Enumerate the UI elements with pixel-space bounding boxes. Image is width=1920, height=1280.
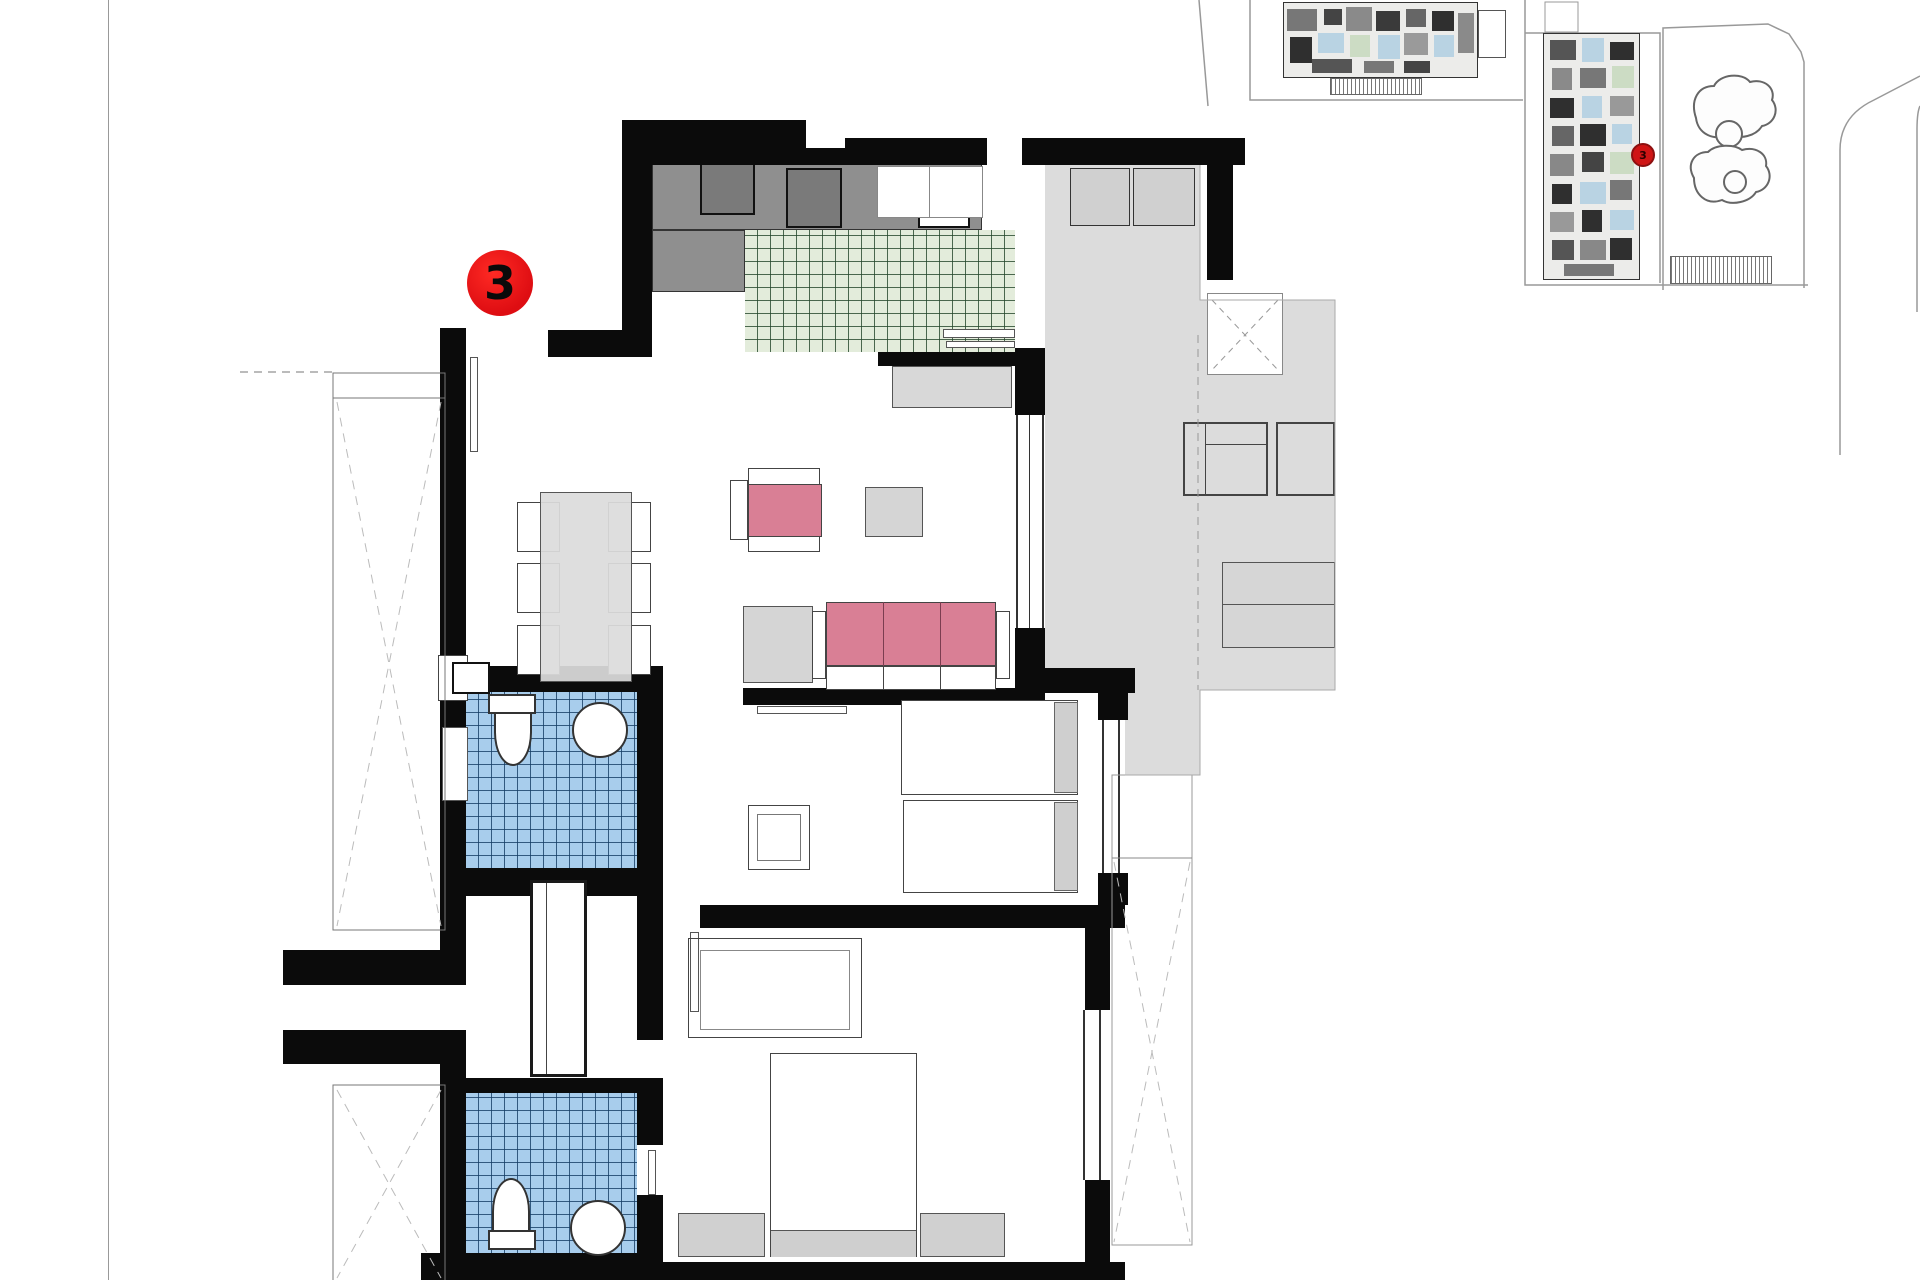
light-well-shaft-1: [240, 372, 445, 930]
site-room: [1552, 68, 1572, 90]
site-room: [1550, 212, 1574, 232]
site-room: [1612, 66, 1634, 88]
site-room: [1458, 13, 1474, 53]
site-room: [1610, 96, 1634, 116]
site-room: [1346, 7, 1372, 31]
terrace-edges: [1125, 165, 1335, 775]
floor-plan-page: 3 3: [0, 0, 1920, 1280]
site-room: [1580, 240, 1606, 260]
site-room: [1580, 124, 1606, 146]
site-room: [1378, 35, 1400, 59]
site-room: [1582, 152, 1604, 172]
site-building-a: [1283, 2, 1478, 78]
pool-shapes: [1691, 76, 1776, 203]
site-room: [1610, 238, 1632, 260]
site-room: [1318, 33, 1344, 53]
site-room: [1552, 184, 1572, 204]
site-room: [1324, 9, 1342, 25]
site-room: [1610, 180, 1632, 200]
site-room: [1580, 182, 1606, 204]
site-room: [1550, 98, 1574, 118]
site-room: [1376, 11, 1400, 31]
unit-number-badge: 3: [467, 250, 533, 316]
site-room: [1552, 240, 1574, 260]
site-building-a-porch: [1478, 10, 1506, 58]
site-room: [1612, 124, 1632, 144]
site-room: [1550, 154, 1574, 176]
site-room: [1610, 42, 1634, 60]
unit-number-label: 3: [484, 256, 516, 310]
site-unit-marker: 3: [1631, 143, 1655, 167]
site-room: [1582, 96, 1602, 118]
site-room: [1312, 59, 1352, 73]
site-room: [1550, 40, 1576, 60]
site-room: [1350, 35, 1370, 57]
site-room: [1582, 210, 1602, 232]
site-room: [1564, 264, 1614, 276]
deck-hatch-pool: [1670, 256, 1772, 284]
site-room: [1364, 61, 1394, 73]
site-room: [1404, 33, 1428, 55]
site-room: [1404, 61, 1430, 73]
terrace-zone-dashes: [1198, 300, 1335, 690]
site-room: [1580, 68, 1606, 88]
site-room: [1434, 35, 1454, 57]
light-well-shaft-2: [333, 1085, 445, 1280]
site-entrance-box: [1545, 2, 1578, 32]
site-room: [1287, 9, 1317, 31]
site-building-b: [1543, 33, 1640, 280]
deck-hatch-building-a: [1330, 78, 1422, 95]
open-terrace: [1112, 775, 1192, 1245]
site-room: [1432, 11, 1454, 31]
site-room: [1406, 9, 1426, 27]
site-room: [1552, 126, 1574, 146]
site-room: [1610, 210, 1634, 230]
site-unit-marker-label: 3: [1639, 149, 1647, 162]
site-room: [1290, 37, 1312, 63]
site-room: [1582, 38, 1604, 62]
